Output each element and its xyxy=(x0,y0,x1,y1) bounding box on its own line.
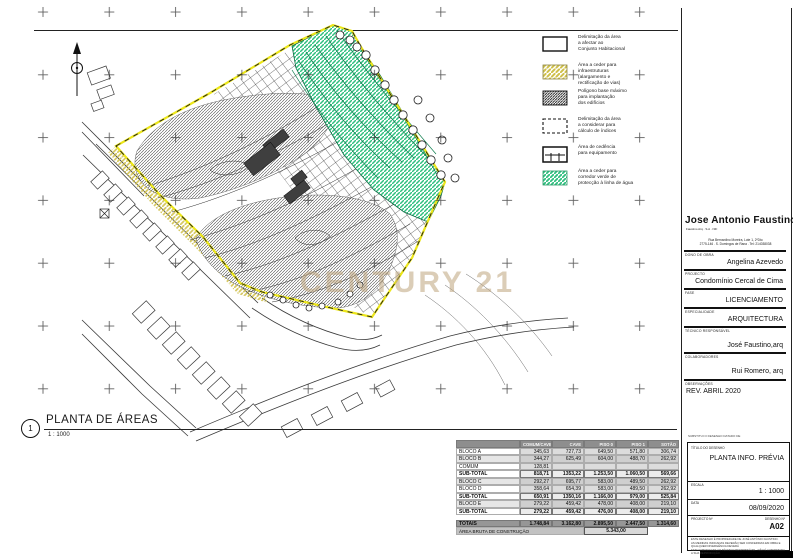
legend-label: Polígono base máximo para implantação do… xyxy=(578,89,627,107)
plan-title-rule xyxy=(44,429,677,430)
table-cell: 219,10 xyxy=(648,508,679,516)
gross-area-label: ÁREA BRUTA DE CONSTRUÇÃO xyxy=(456,527,584,535)
table-header-cell xyxy=(456,440,520,448)
legend-swatch-plain xyxy=(542,36,568,52)
legend-swatch-green-hatch xyxy=(542,170,568,186)
table-cell: 1350,16 xyxy=(552,493,584,501)
phase-value: LICENCIAMENTO xyxy=(681,297,783,304)
legend-label: Delimitação da área a afectar ao Conjunt… xyxy=(578,35,625,53)
table-cell: 478,00 xyxy=(584,500,616,508)
table-row-label: SUB-TOTAL xyxy=(456,493,520,501)
architect-name: Jose Antonio Faustino xyxy=(685,215,793,226)
table-cell: 525,84 xyxy=(648,493,679,501)
table-cell: 625,49 xyxy=(552,455,584,463)
table-cell: 1.060,50 xyxy=(616,470,648,478)
architect-address: Rua Bernardino Moreira, Lote 1, 2ºDto 27… xyxy=(681,238,790,246)
totals-label: TOTAIS xyxy=(456,520,520,528)
scale-value: 1 : 1000 xyxy=(759,488,784,495)
table-row-label: BLOCO E xyxy=(456,500,520,508)
field-label-desenho-no: DESENHO Nº xyxy=(765,517,785,521)
table-cell xyxy=(584,463,616,471)
table-cell: 262,92 xyxy=(648,455,679,463)
legend-swatch-dashed xyxy=(542,118,568,134)
table-header-cell: PISO 0 xyxy=(584,440,616,448)
table-cell: 459,42 xyxy=(552,508,584,516)
table-row-label: BLOCO A xyxy=(456,448,520,456)
field-label-escala: ESCALA xyxy=(691,483,704,487)
table-cell: 1.253,50 xyxy=(584,470,616,478)
table-cell: 345,63 xyxy=(520,448,552,456)
areas-table: COMUM/CAVECAVEPISO 0PISO 1SOTÃOBLOCO A34… xyxy=(456,440,679,535)
table-cell: 569,66 xyxy=(648,470,679,478)
table-cell: 344,27 xyxy=(520,455,552,463)
disclaimer-text: ESTE DESENHO É PROPRIEDADE DE JOSÉ ANTÓN… xyxy=(691,538,786,556)
table-cell: 649,50 xyxy=(584,448,616,456)
table-row-label: COMUM xyxy=(456,463,520,471)
plan-scale: 1 : 1000 xyxy=(48,432,70,438)
client-name: Angelina Azevedo xyxy=(681,259,783,266)
legend-label: Área a ceder para infraestruturas (alarg… xyxy=(578,63,620,87)
gross-area-value: 5.343,00 xyxy=(584,527,648,535)
legend-swatch-equipment xyxy=(542,146,568,163)
project-name: Condomínio Cercal de Cima xyxy=(681,278,783,285)
table-cell: 279,22 xyxy=(520,500,552,508)
table-cell xyxy=(616,463,648,471)
field-label-projecto: PROJECTO xyxy=(685,272,793,276)
field-label-dono-de-obra: DONO DE OBRA xyxy=(685,253,793,257)
table-cell: 489,50 xyxy=(616,478,648,486)
info-box-note: SUBSTITUI O DESENHO DATADO DE xyxy=(688,434,740,438)
watermark: CENTURY 21 xyxy=(300,266,515,299)
revision-note: REV. ABRIL 2020 xyxy=(686,388,793,395)
legend-label: Delimitação da área a considerar para cá… xyxy=(578,117,621,135)
table-cell: 727,73 xyxy=(552,448,584,456)
table-cell xyxy=(648,463,679,471)
table-row-label: BLOCO C xyxy=(456,478,520,486)
legend: Delimitação da área a afectar ao Conjunt… xyxy=(540,36,680,206)
architect-subtitle: Faustino Arq . S.A . NIF xyxy=(686,227,793,231)
collaborator-name: Rui Romero, arq xyxy=(681,368,783,375)
field-label-especialidade: ESPECIALIDADE xyxy=(685,310,793,314)
field-label-colaboradores: COLABORADORES xyxy=(685,355,793,359)
table-row-label: SUB-TOTAL xyxy=(456,508,520,516)
table-cell: 650,91 xyxy=(520,493,552,501)
architect-signature: José Faustino,arq xyxy=(681,342,783,349)
field-label-titulo: TÍTULO DO DESENHO xyxy=(691,446,725,450)
table-row-label: BLOCO B xyxy=(456,455,520,463)
table-cell: 3.162,80 xyxy=(552,520,584,528)
table-header-cell: COMUM/CAVE xyxy=(520,440,552,448)
field-label-observacoes: OBSERVAÇÕES xyxy=(685,382,793,386)
table-cell: 476,00 xyxy=(584,508,616,516)
legend-swatch-yellow-hatch xyxy=(542,64,568,80)
table-cell: 408,00 xyxy=(616,500,648,508)
table-cell: 459,42 xyxy=(552,500,584,508)
table-cell: 292,27 xyxy=(520,478,552,486)
legend-label: Área de cedência para equipamento xyxy=(578,145,617,157)
plan-title: PLANTA DE ÁREAS xyxy=(46,414,158,426)
date-value: 08/09/2020 xyxy=(749,505,784,512)
table-cell: 571,80 xyxy=(616,448,648,456)
table-cell: 604,00 xyxy=(584,455,616,463)
plan-number-circle: 1 xyxy=(21,419,40,438)
table-cell: 408,00 xyxy=(616,508,648,516)
table-row-label: SUB-TOTAL xyxy=(456,470,520,478)
table-row-label: BLOCO D xyxy=(456,485,520,493)
table-cell: 1353,22 xyxy=(552,470,584,478)
legend-label: Área a ceder para corredor verde de prot… xyxy=(578,169,633,187)
table-cell: 818,71 xyxy=(520,470,552,478)
table-cell: 488,70 xyxy=(616,455,648,463)
drawing-sheet: CENTURY 21 Delimitação da área a afectar… xyxy=(0,0,793,558)
table-cell: 128,81 xyxy=(520,463,552,471)
table-cell: 279,22 xyxy=(520,508,552,516)
table-cell: 219,10 xyxy=(648,500,679,508)
field-label-projecto-no: PROJECTO Nº xyxy=(691,517,713,521)
table-cell: 306,74 xyxy=(648,448,679,456)
table-header-cell: PISO 1 xyxy=(616,440,648,448)
sheet-number: A02 xyxy=(769,522,784,531)
table-cell: 695,77 xyxy=(552,478,584,486)
table-cell: 654,39 xyxy=(552,485,584,493)
table-cell: 262,92 xyxy=(648,478,679,486)
table-cell: 583,00 xyxy=(584,485,616,493)
drawing-title: PLANTA INFO. PRÉVIA xyxy=(709,455,784,462)
field-label-tecnico: TÉCNICO RESPONSÁVEL xyxy=(685,329,793,333)
table-cell: 358,64 xyxy=(520,485,552,493)
table-cell xyxy=(552,463,584,471)
table-cell xyxy=(648,527,679,535)
table-cell: 979,00 xyxy=(616,493,648,501)
divider xyxy=(688,499,789,500)
table-cell: 1.314,60 xyxy=(648,520,679,528)
drawing-info-box: TÍTULO DO DESENHO PLANTA INFO. PRÉVIA ES… xyxy=(687,442,790,551)
table-cell: 1.748,84 xyxy=(520,520,552,528)
table-cell: 583,00 xyxy=(584,478,616,486)
table-header-cell: CAVE xyxy=(552,440,584,448)
table-cell: 2.895,50 xyxy=(584,520,616,528)
field-label-fase: FASE xyxy=(685,291,793,295)
table-cell: 2.447,50 xyxy=(616,520,648,528)
specialty-value: ARQUITECTURA xyxy=(681,316,783,323)
table-cell: 262,92 xyxy=(648,485,679,493)
legend-swatch-dark-hatch xyxy=(542,90,568,106)
table-header-cell: SOTÃO xyxy=(648,440,679,448)
table-cell: 1.166,00 xyxy=(584,493,616,501)
field-label-data: DATA xyxy=(691,501,699,505)
table-cell: 489,50 xyxy=(616,485,648,493)
